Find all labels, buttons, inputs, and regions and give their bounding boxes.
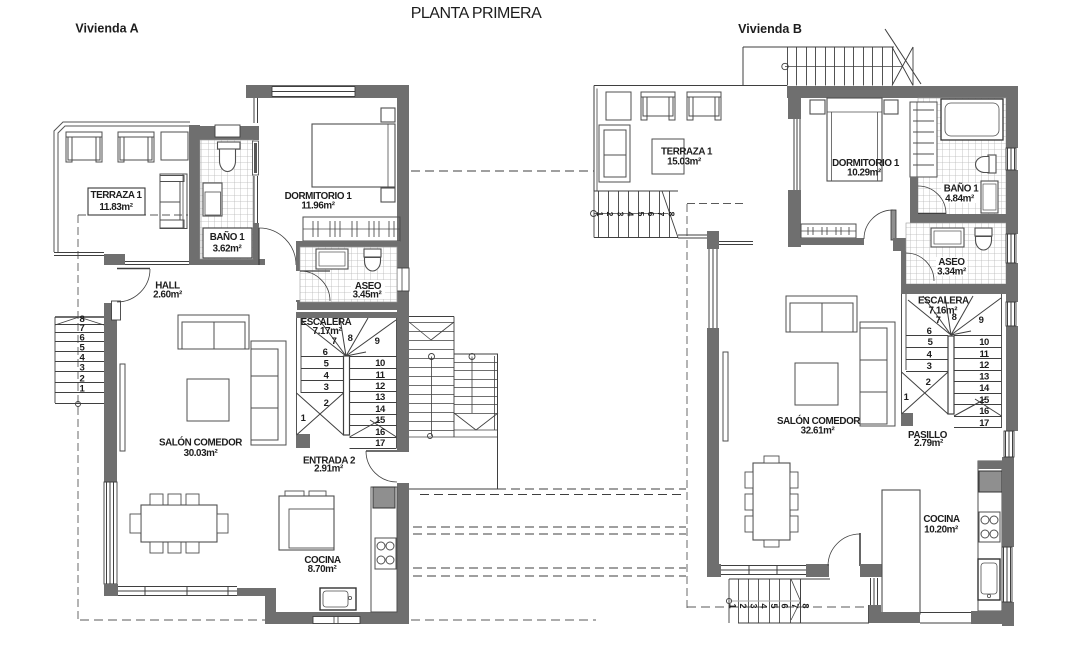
svg-text:3: 3: [80, 363, 85, 374]
svg-text:BAÑO 1: BAÑO 1: [210, 232, 246, 243]
svg-text:2: 2: [605, 212, 615, 217]
svg-text:5: 5: [636, 212, 646, 217]
svg-text:3: 3: [615, 212, 625, 217]
svg-text:7: 7: [790, 603, 800, 608]
svg-text:2.79m²: 2.79m²: [914, 438, 944, 449]
svg-text:12: 12: [979, 360, 989, 371]
svg-text:3.45m²: 3.45m²: [353, 290, 383, 301]
svg-text:6: 6: [646, 212, 656, 217]
svg-text:10.20m²: 10.20m²: [924, 525, 959, 536]
svg-text:11: 11: [979, 349, 989, 360]
svg-text:30.03m²: 30.03m²: [184, 448, 219, 459]
svg-text:12: 12: [375, 381, 385, 392]
svg-text:6: 6: [780, 603, 790, 608]
svg-text:14: 14: [375, 404, 386, 415]
svg-text:3: 3: [748, 603, 758, 608]
svg-text:4: 4: [626, 212, 636, 217]
svg-text:8: 8: [800, 603, 810, 608]
svg-text:2: 2: [324, 398, 329, 409]
svg-text:2.60m²: 2.60m²: [153, 290, 183, 301]
svg-text:7: 7: [656, 212, 666, 217]
svg-text:Vivienda B: Vivienda B: [738, 22, 802, 36]
svg-text:32.61m²: 32.61m²: [801, 425, 836, 436]
svg-text:11.83m²: 11.83m²: [99, 202, 133, 213]
svg-text:Vivienda A: Vivienda A: [75, 22, 138, 36]
svg-text:9: 9: [375, 336, 380, 347]
svg-text:5: 5: [769, 603, 779, 608]
svg-text:8.70m²: 8.70m²: [308, 564, 338, 575]
svg-text:15: 15: [979, 395, 990, 406]
svg-text:3: 3: [927, 361, 932, 372]
svg-text:2: 2: [738, 603, 748, 608]
svg-text:3: 3: [324, 382, 329, 393]
svg-text:13: 13: [979, 372, 989, 383]
svg-text:2: 2: [926, 377, 931, 388]
svg-text:17: 17: [375, 438, 385, 449]
svg-text:COCINA: COCINA: [923, 514, 960, 525]
svg-text:PLANTA PRIMERA: PLANTA PRIMERA: [411, 5, 542, 22]
svg-text:6: 6: [323, 347, 328, 358]
svg-text:7.17m²: 7.17m²: [313, 326, 343, 337]
svg-text:8: 8: [952, 312, 957, 323]
svg-text:13: 13: [375, 392, 385, 403]
svg-text:9: 9: [979, 315, 984, 326]
svg-text:1: 1: [728, 603, 738, 608]
svg-text:16: 16: [375, 427, 385, 438]
svg-text:1: 1: [595, 212, 605, 217]
svg-text:14: 14: [979, 383, 990, 394]
svg-text:TERRAZA 1: TERRAZA 1: [90, 190, 142, 201]
svg-text:17: 17: [979, 418, 989, 429]
svg-text:11: 11: [375, 370, 385, 381]
svg-text:8: 8: [666, 212, 676, 217]
svg-text:SALÓN COMEDOR: SALÓN COMEDOR: [159, 437, 242, 449]
svg-text:15.03m²: 15.03m²: [667, 156, 702, 167]
svg-text:7: 7: [332, 336, 337, 347]
svg-text:6: 6: [927, 326, 932, 337]
svg-text:11.96m²: 11.96m²: [301, 201, 335, 212]
svg-text:4: 4: [759, 603, 769, 608]
svg-text:15: 15: [375, 415, 386, 426]
svg-text:4.84m²: 4.84m²: [945, 193, 975, 204]
svg-text:3.34m²: 3.34m²: [937, 266, 967, 277]
svg-text:10: 10: [979, 337, 989, 348]
svg-text:8: 8: [348, 333, 353, 344]
svg-text:16: 16: [979, 406, 989, 417]
svg-text:10: 10: [375, 358, 385, 369]
svg-text:10.29m²: 10.29m²: [847, 168, 882, 179]
svg-text:3.62m²: 3.62m²: [213, 244, 243, 255]
svg-text:2.91m²: 2.91m²: [314, 464, 344, 475]
svg-text:7: 7: [936, 315, 941, 326]
